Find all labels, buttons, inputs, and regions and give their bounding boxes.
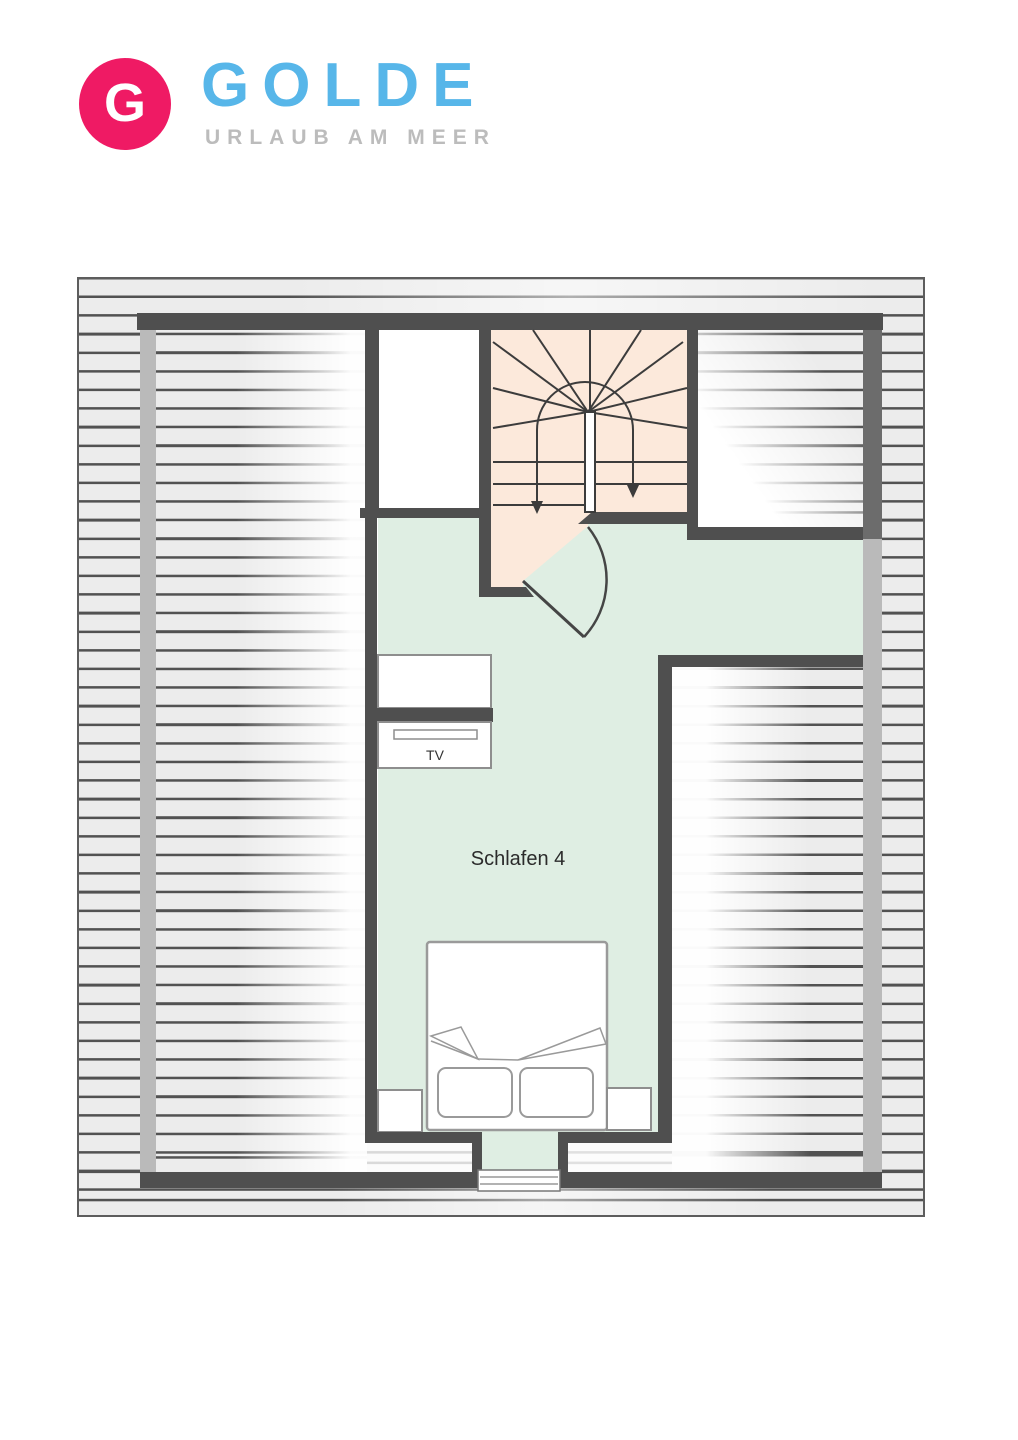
logo: G GOLDE URLAUB AM MEER	[79, 44, 499, 164]
wall-arm-bottom	[658, 655, 863, 667]
wall-closet-bottom	[360, 508, 490, 518]
blanket-edge	[478, 1059, 518, 1060]
room-closet	[378, 330, 479, 508]
wall-stair-left	[479, 330, 491, 597]
logo-badge-icon: G	[79, 58, 171, 150]
wall-bay-stub-right	[558, 1132, 568, 1172]
brand-name: GOLDE	[201, 50, 486, 121]
tv-label: TV	[426, 747, 445, 763]
bedroom-label: Schlafen 4	[471, 848, 566, 870]
wall-top	[137, 313, 883, 330]
tv-screen	[394, 730, 477, 739]
nightstand-left	[378, 1090, 422, 1132]
brand-tagline: URLAUB AM MEER	[205, 126, 496, 150]
wall-closet-left	[365, 313, 379, 518]
wall-bedroom-bottom-left	[365, 1132, 482, 1143]
wall-bedroom-left	[365, 518, 377, 1143]
plan-drawing: TV	[77, 277, 925, 1217]
wall-bedroom-bottom-right	[558, 1132, 672, 1143]
wall-bedroom-right	[658, 655, 672, 1132]
logo-letter: G	[104, 72, 146, 134]
pillow-right	[520, 1068, 593, 1117]
wall-storage-bottom	[687, 527, 863, 540]
shelf	[378, 655, 491, 708]
wall-stub-tv	[365, 708, 493, 722]
wall-bay-stub-left	[472, 1132, 482, 1172]
wall-under-stair	[578, 512, 698, 524]
page: { "logo": { "badge_letter": "G", "brand_…	[0, 0, 1018, 1440]
floor-plan: TV	[77, 277, 925, 1217]
wall-landing-bottom	[479, 587, 534, 597]
window-bottom	[478, 1170, 560, 1191]
nightstand-right	[607, 1088, 651, 1130]
pillow-left	[438, 1068, 512, 1117]
stair-newel	[585, 412, 595, 512]
wall-stair-right	[687, 330, 698, 539]
